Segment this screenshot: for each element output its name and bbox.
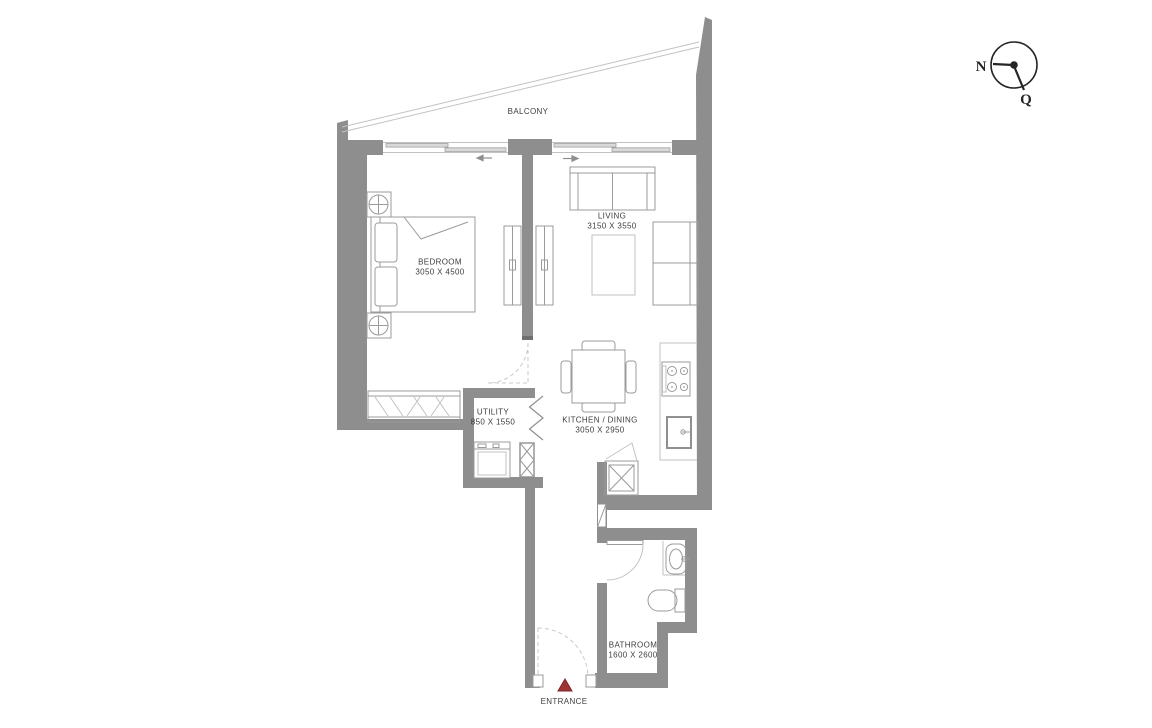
compass-north-label: N — [976, 59, 987, 75]
bedroom-label: BEDROOM 3050 X 4500 — [415, 258, 464, 279]
stove — [662, 362, 690, 396]
washing-machine — [474, 442, 510, 478]
wardrobe-living-side — [536, 226, 553, 305]
duct-panel — [598, 504, 607, 527]
shower-cabin — [605, 443, 638, 495]
utility-bifold-door — [530, 396, 544, 440]
bedroom-balcony-window — [383, 143, 508, 153]
slide-direction-right-icon — [563, 156, 578, 161]
nightstand-bottom — [367, 313, 391, 338]
floorplan-drawing: N Q — [0, 0, 1152, 728]
utility-label: UTILITY 850 X 1550 — [471, 408, 515, 429]
dining-table — [561, 341, 636, 412]
slide-direction-left-icon — [477, 155, 492, 160]
bathroom-door — [607, 541, 643, 581]
rug — [592, 235, 635, 295]
kitchen-sink — [667, 417, 691, 448]
wardrobe-bedroom-side — [504, 226, 521, 305]
kitchen-dining-label: KITCHEN / DINING 3050 X 2950 — [562, 416, 637, 437]
entrance-label: ENTRANCE — [541, 697, 588, 707]
bathroom-label: BATHROOM 1600 X 2600 — [608, 641, 657, 662]
bedroom-closet — [368, 391, 460, 422]
floorplan-canvas: N Q BALCONY BEDROOM 3050 X 4500 LIVING 3… — [0, 0, 1152, 728]
sofa — [570, 167, 655, 210]
utility-shaft — [520, 443, 534, 477]
entrance-door — [533, 628, 596, 687]
tv-unit — [653, 222, 698, 305]
balcony-railing — [342, 42, 699, 132]
living-balcony-window — [552, 143, 672, 153]
living-label: LIVING 3150 X 3550 — [587, 212, 636, 233]
entrance-marker-icon — [558, 679, 572, 691]
toilet — [648, 589, 685, 612]
compass-q-label: Q — [1020, 92, 1032, 108]
nightstand-top — [367, 192, 391, 217]
bedroom-door — [488, 343, 528, 383]
compass-icon: N Q — [976, 42, 1037, 108]
exterior-walls — [337, 17, 712, 688]
balcony-label: BALCONY — [508, 107, 549, 117]
